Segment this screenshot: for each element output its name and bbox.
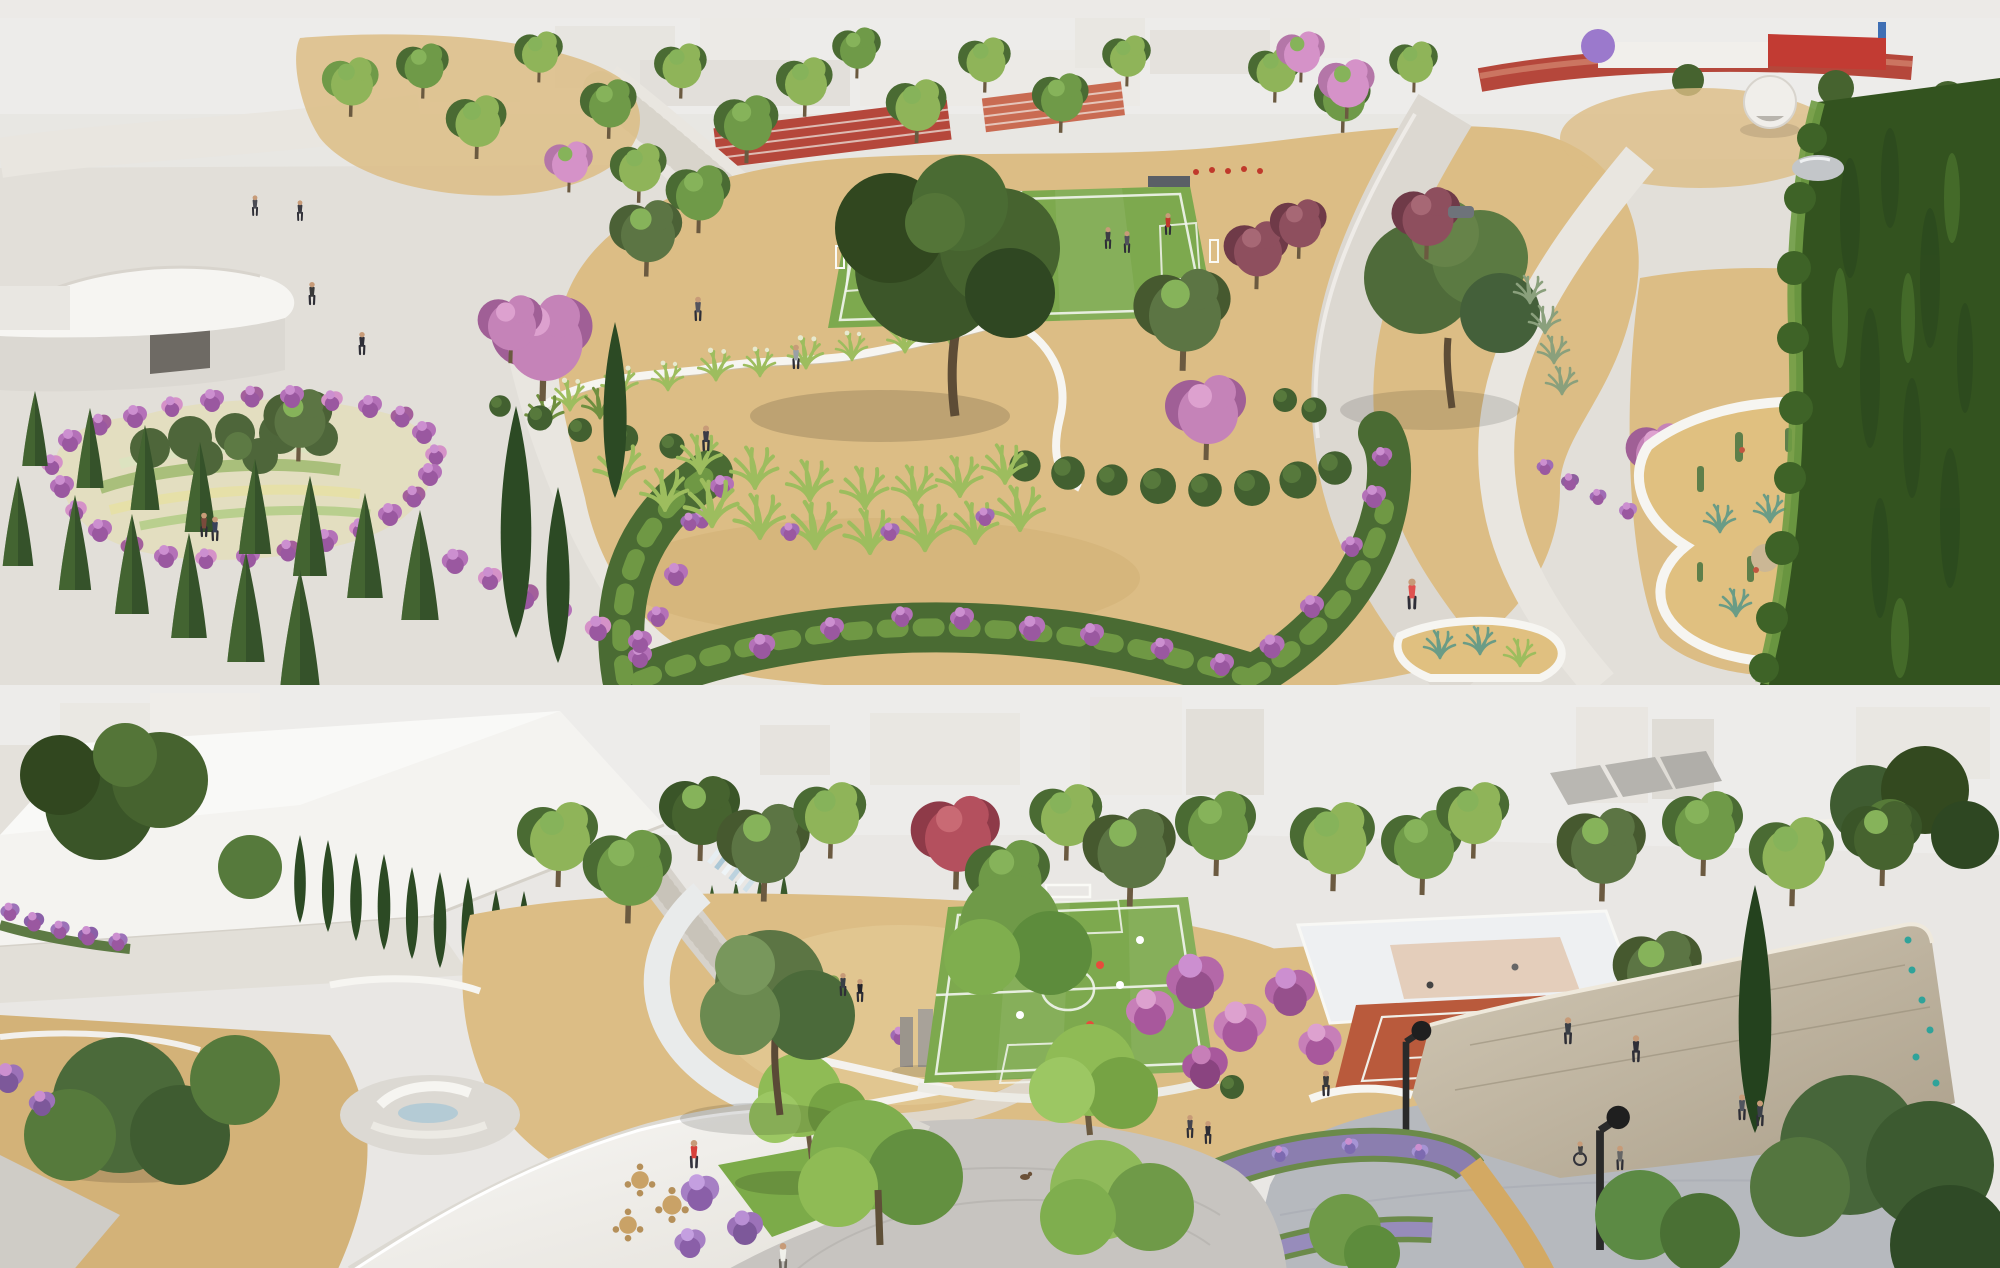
- track-colonnade: [1598, 42, 1768, 68]
- jacaranda-tree: [1581, 29, 1615, 63]
- fountain-water: [398, 1103, 458, 1123]
- bottom-rendering-scene: [0, 685, 2000, 1268]
- rendering-montage: [0, 0, 2000, 1268]
- grandstand-roof: [1768, 34, 1886, 70]
- panel-bottom-rendering: [0, 685, 2000, 1268]
- bench-object: [1448, 206, 1474, 218]
- panel-top-rendering: [0, 18, 2000, 685]
- top-rendering-scene: [0, 18, 2000, 685]
- field-bench: [1148, 176, 1190, 187]
